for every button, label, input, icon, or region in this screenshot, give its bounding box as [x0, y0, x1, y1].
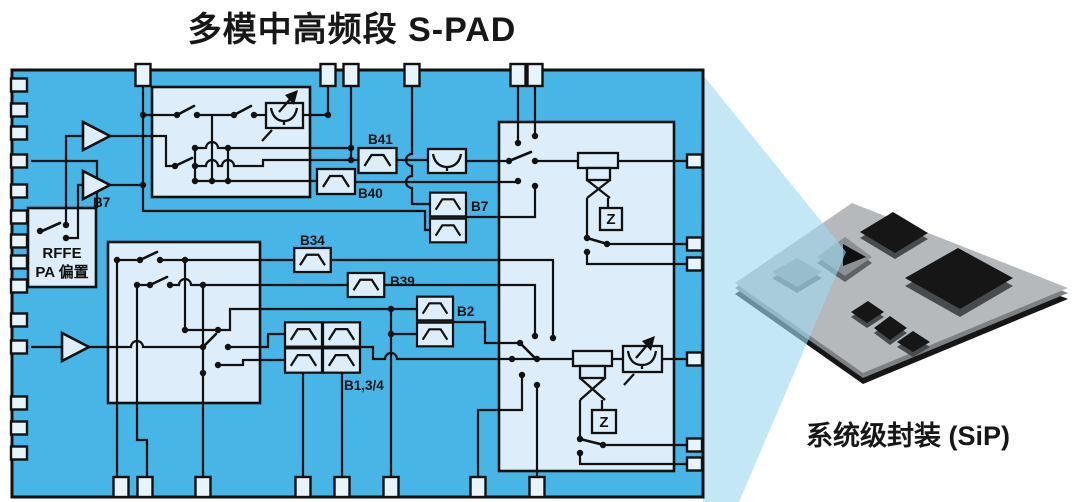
filter-b134-icon — [323, 322, 360, 346]
label-b7-amp: B7 — [93, 195, 110, 210]
filter-b134-icon — [323, 348, 360, 372]
diplexer-icon — [428, 149, 466, 173]
filter-b34-icon — [294, 248, 330, 272]
filter-b41-icon — [359, 148, 397, 173]
filter-b2-rx-icon — [417, 323, 453, 347]
page-title: 多模中高频段 S-PAD — [150, 2, 554, 51]
label-b2: B2 — [457, 304, 474, 319]
label-rffe-line2: PA 偏置 — [35, 263, 88, 281]
label-b134: B1,3/4 — [344, 378, 384, 393]
label-b39: B39 — [390, 274, 415, 289]
filter-b7-tx-icon — [430, 193, 466, 217]
figure: B41 B40 B7 B7 B34 B39 B2 B1,3/4 Z Z RFFE… — [0, 0, 1080, 502]
label-z2: Z — [599, 414, 608, 431]
filter-b7-rx-icon — [430, 219, 466, 243]
label-b34: B34 — [300, 233, 325, 248]
label-z1: Z — [606, 211, 615, 228]
label-b41: B41 — [368, 132, 393, 147]
filter-b2-tx-icon — [417, 297, 453, 321]
label-rffe-line1: RFFE — [42, 245, 81, 262]
filter-b40-icon — [317, 169, 355, 194]
filter-b134-icon — [285, 348, 322, 372]
label-b40: B40 — [358, 186, 383, 201]
filter-b39-icon — [348, 273, 384, 297]
filter-b134-icon — [285, 322, 322, 346]
sip-caption: 系统级封装 (SiP) — [778, 414, 1038, 453]
label-b7-duplexer: B7 — [471, 199, 488, 214]
